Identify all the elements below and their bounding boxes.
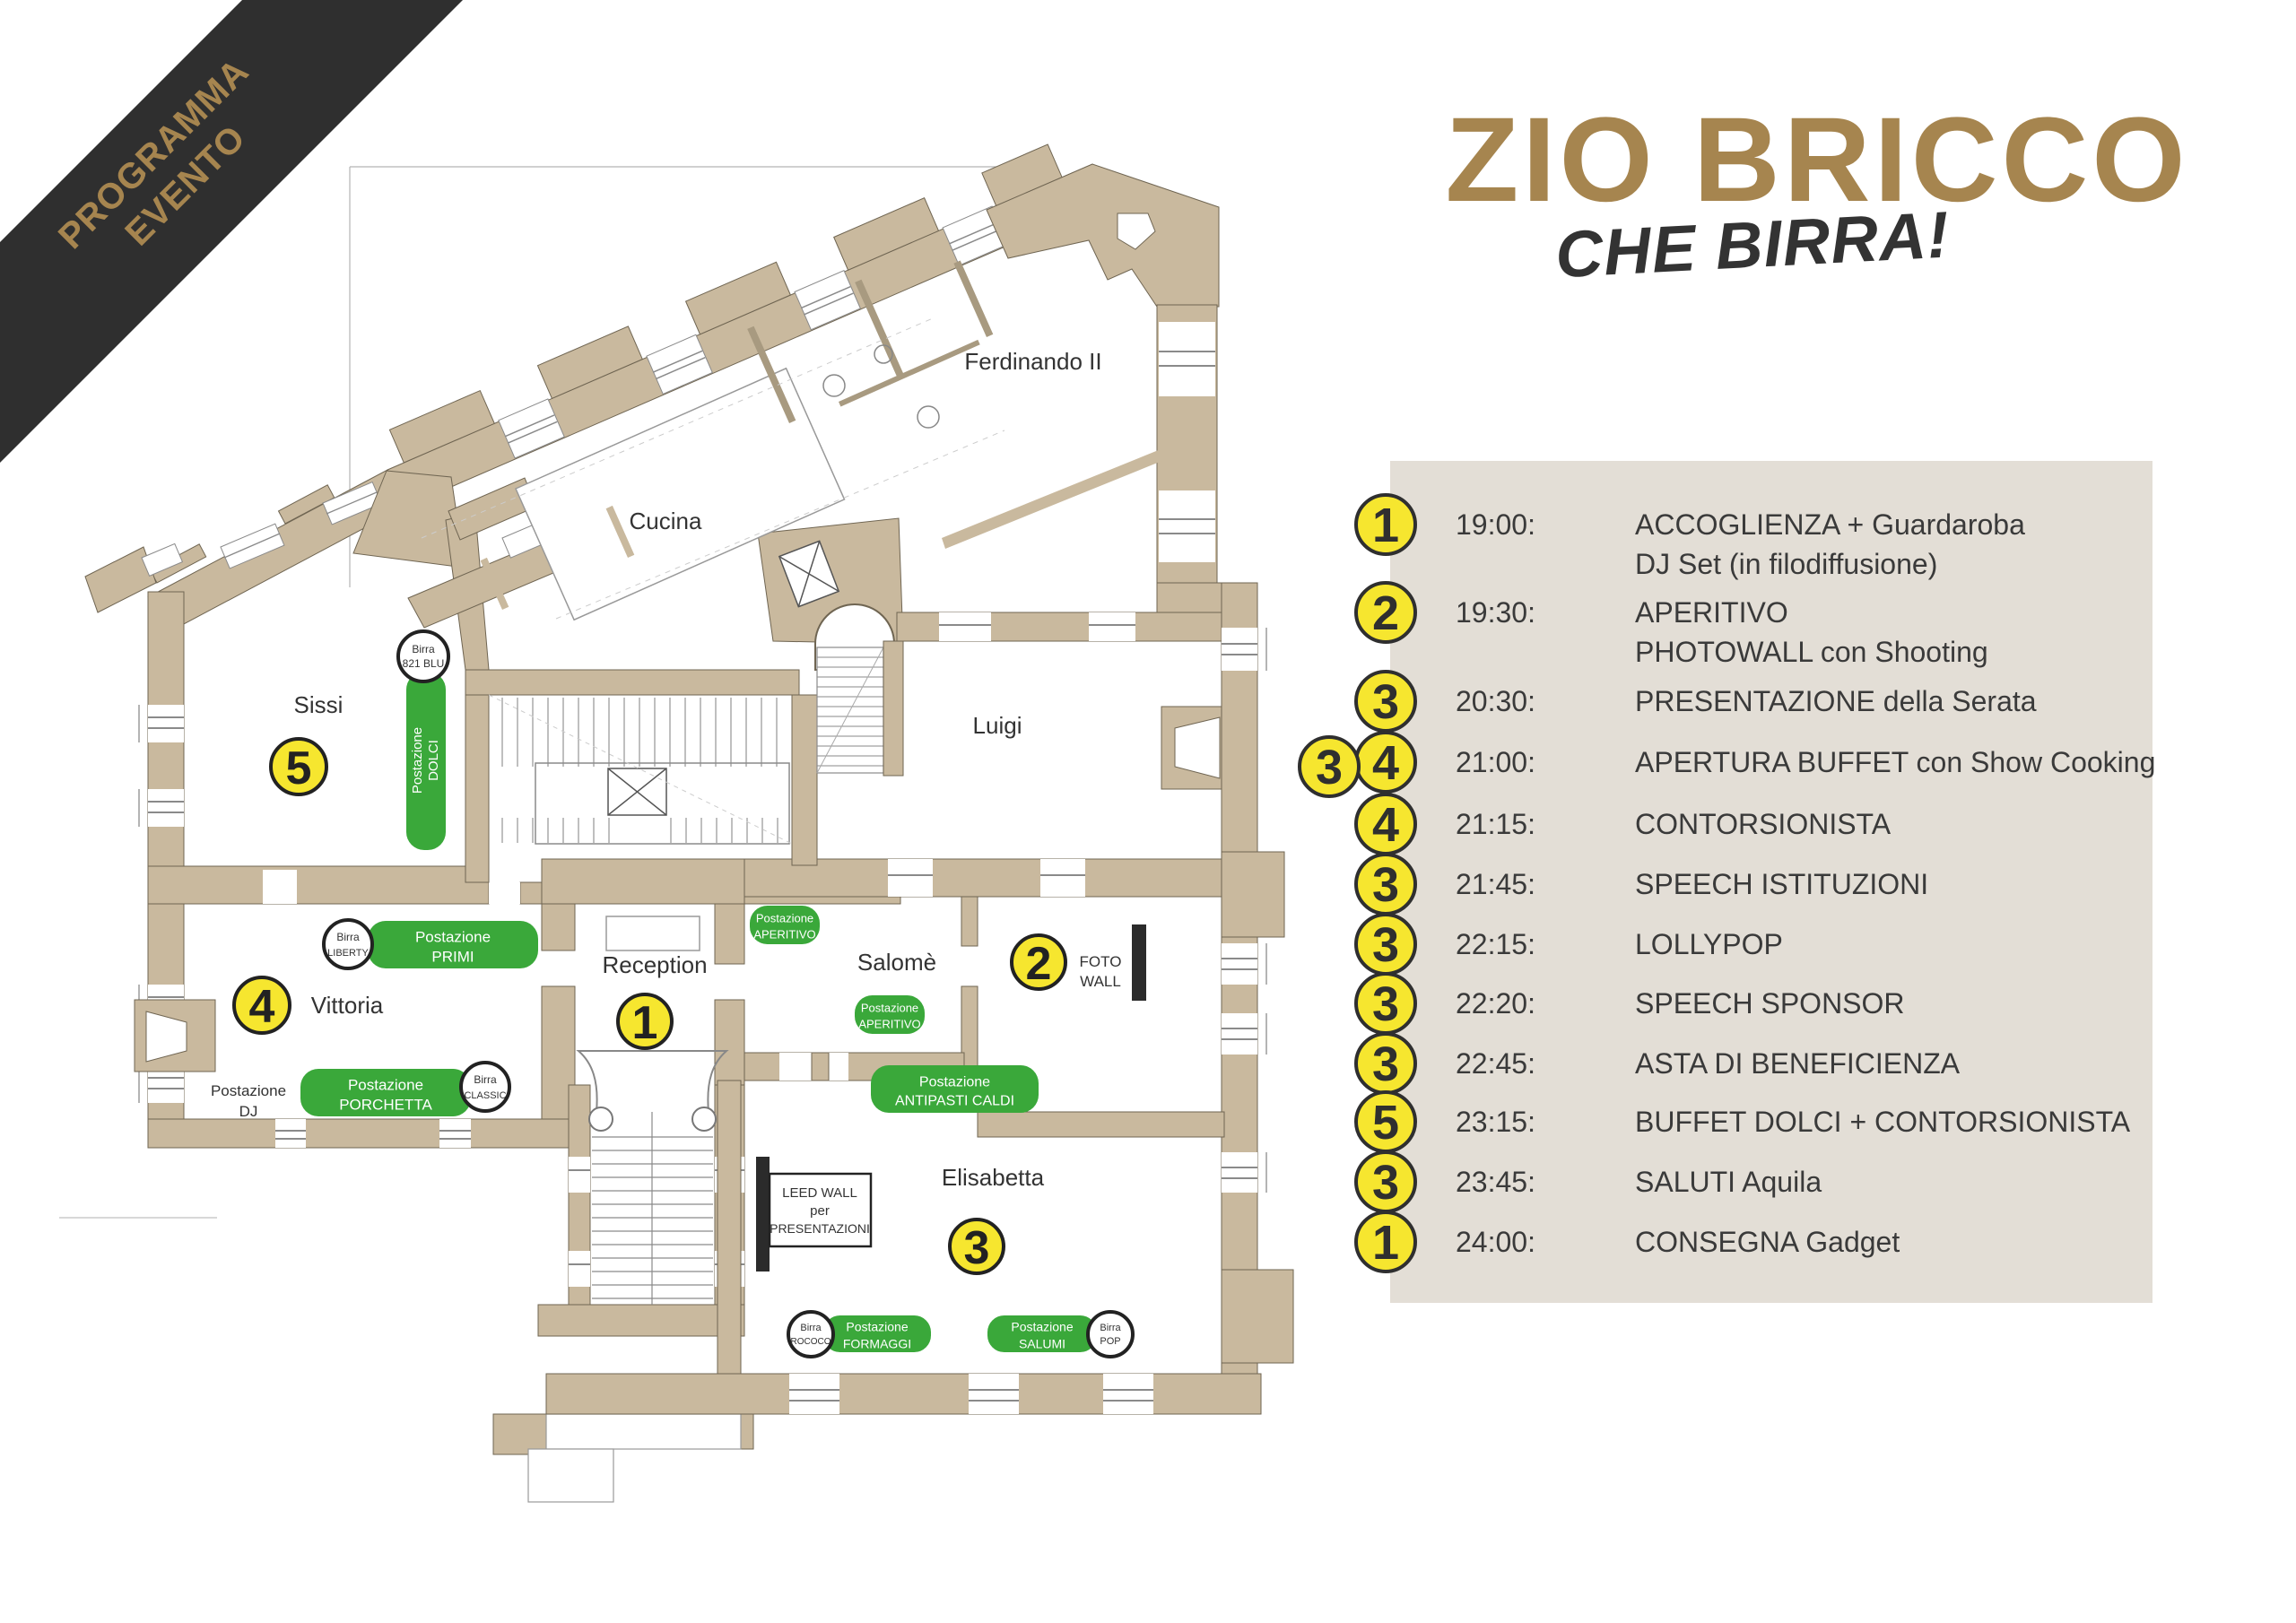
svg-text:per: per <box>810 1203 830 1219</box>
svg-text:Postazione: Postazione <box>211 1082 286 1099</box>
svg-text:5: 5 <box>286 742 312 794</box>
svg-text:22:15:: 22:15: <box>1456 928 1535 960</box>
svg-text:SALUTI Aquila: SALUTI Aquila <box>1635 1166 1822 1198</box>
svg-text:Cucina: Cucina <box>630 508 702 534</box>
svg-text:3: 3 <box>1316 741 1343 794</box>
svg-text:3: 3 <box>1372 1037 1399 1091</box>
svg-text:DJ: DJ <box>239 1103 258 1120</box>
svg-text:5: 5 <box>1372 1096 1399 1150</box>
svg-text:CONTORSIONISTA: CONTORSIONISTA <box>1635 808 1892 840</box>
svg-text:PORCHETTA: PORCHETTA <box>339 1097 432 1114</box>
svg-text:20:30:: 20:30: <box>1456 685 1535 717</box>
svg-text:Elisabetta: Elisabetta <box>942 1164 1045 1191</box>
svg-text:Postazione: Postazione <box>861 1002 918 1015</box>
svg-text:Postazione: Postazione <box>348 1077 423 1094</box>
svg-text:3: 3 <box>1372 918 1399 972</box>
svg-text:Postazione: Postazione <box>846 1320 908 1334</box>
svg-text:Postazione: Postazione <box>756 912 813 925</box>
svg-text:ACCOGLIENZA + Guardaroba: ACCOGLIENZA + Guardaroba <box>1635 508 2025 541</box>
svg-text:Birra: Birra <box>412 643 435 655</box>
svg-text:22:20:: 22:20: <box>1456 987 1535 1020</box>
svg-text:3: 3 <box>1372 858 1399 912</box>
svg-text:1: 1 <box>1372 499 1399 552</box>
svg-text:Postazione: Postazione <box>415 929 491 946</box>
svg-text:APERTURA BUFFET con Show Cooki: APERTURA BUFFET con Show Cooking <box>1635 746 2155 778</box>
svg-text:LIBERTY: LIBERTY <box>327 948 369 959</box>
svg-text:21:15:: 21:15: <box>1456 808 1535 840</box>
svg-text:CONSEGNA Gadget: CONSEGNA Gadget <box>1635 1226 1900 1258</box>
svg-text:LOLLYPOP: LOLLYPOP <box>1635 928 1783 960</box>
svg-text:POP: POP <box>1100 1336 1120 1347</box>
svg-text:BUFFET DOLCI + CONTORSIONISTA: BUFFET DOLCI + CONTORSIONISTA <box>1635 1106 2131 1138</box>
svg-text:3: 3 <box>964 1222 990 1274</box>
svg-text:SPEECH ISTITUZIONI: SPEECH ISTITUZIONI <box>1635 868 1928 900</box>
svg-text:Birra: Birra <box>336 931 360 943</box>
svg-text:3: 3 <box>1372 675 1399 729</box>
svg-text:SPEECH SPONSOR: SPEECH SPONSOR <box>1635 987 1905 1020</box>
svg-text:22:45:: 22:45: <box>1456 1047 1535 1080</box>
svg-text:Ferdinando II: Ferdinando II <box>964 348 1101 375</box>
svg-text:SALUMI: SALUMI <box>1019 1337 1065 1351</box>
svg-text:21:45:: 21:45: <box>1456 868 1535 900</box>
svg-text:ROCOCO: ROCOCO <box>791 1337 831 1347</box>
svg-text:ASTA DI BENEFICIENZA: ASTA DI BENEFICIENZA <box>1635 1047 1961 1080</box>
svg-text:Vittoria: Vittoria <box>311 992 384 1019</box>
svg-text:PHOTOWALL con Shooting: PHOTOWALL con Shooting <box>1635 636 1988 668</box>
svg-text:Reception: Reception <box>602 951 707 978</box>
svg-text:DOLCI: DOLCI <box>426 740 441 781</box>
svg-text:Postazione: Postazione <box>919 1075 990 1090</box>
svg-text:Sissi: Sissi <box>294 691 344 718</box>
svg-text:APERITIVO: APERITIVO <box>1635 596 1788 629</box>
svg-text:Postazione: Postazione <box>1011 1320 1073 1334</box>
svg-text:2: 2 <box>1372 586 1399 640</box>
svg-text:Postazione: Postazione <box>410 727 425 794</box>
svg-text:4: 4 <box>1372 798 1399 852</box>
svg-text:PRESENTAZIONI: PRESENTAZIONI <box>770 1221 870 1236</box>
svg-text:APERITIVO: APERITIVO <box>753 928 815 942</box>
svg-text:ANTIPASTI CALDI: ANTIPASTI CALDI <box>895 1094 1014 1109</box>
svg-text:19:30:: 19:30: <box>1456 596 1535 629</box>
svg-text:Birra: Birra <box>1100 1323 1121 1333</box>
svg-text:19:00:: 19:00: <box>1456 508 1535 541</box>
svg-text:21:00:: 21:00: <box>1456 746 1535 778</box>
svg-text:23:45:: 23:45: <box>1456 1166 1535 1198</box>
svg-text:1: 1 <box>632 997 658 1049</box>
svg-text:821 BLU: 821 BLU <box>403 657 445 670</box>
svg-text:Birra: Birra <box>800 1323 822 1333</box>
svg-text:CLASSIC: CLASSIC <box>464 1090 506 1101</box>
svg-text:24:00:: 24:00: <box>1456 1226 1535 1258</box>
svg-text:4: 4 <box>1372 736 1399 790</box>
svg-text:3: 3 <box>1372 1156 1399 1210</box>
svg-text:PRESENTAZIONE della Serata: PRESENTAZIONE della Serata <box>1635 685 2037 717</box>
svg-text:2: 2 <box>1026 938 1052 990</box>
svg-text:WALL: WALL <box>1080 973 1121 990</box>
svg-text:4: 4 <box>249 981 275 1033</box>
svg-text:23:15:: 23:15: <box>1456 1106 1535 1138</box>
svg-text:FOTO: FOTO <box>1080 953 1122 970</box>
svg-text:LEED WALL: LEED WALL <box>782 1185 857 1201</box>
svg-text:FORMAGGI: FORMAGGI <box>843 1337 911 1351</box>
svg-text:1: 1 <box>1372 1216 1399 1270</box>
svg-text:3: 3 <box>1372 977 1399 1031</box>
svg-text:Salomè: Salomè <box>857 949 936 976</box>
svg-text:PRIMI: PRIMI <box>431 949 474 966</box>
svg-text:APERITIVO: APERITIVO <box>858 1018 920 1031</box>
svg-text:DJ Set (in filodiffusione): DJ Set (in filodiffusione) <box>1635 548 1937 580</box>
svg-text:Luigi: Luigi <box>973 712 1022 739</box>
svg-text:Birra: Birra <box>474 1073 497 1086</box>
